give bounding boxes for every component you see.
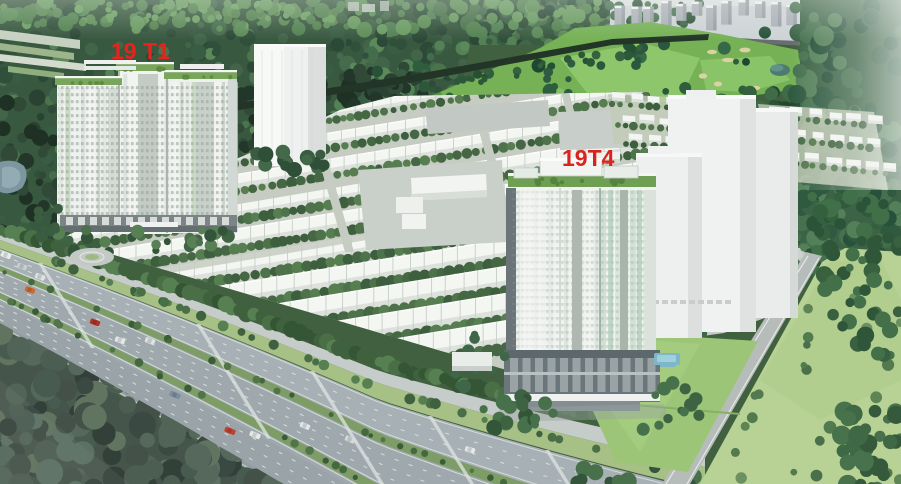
svg-text:19 T1: 19 T1 bbox=[111, 38, 170, 64]
svg-text:19T4: 19T4 bbox=[562, 145, 615, 171]
